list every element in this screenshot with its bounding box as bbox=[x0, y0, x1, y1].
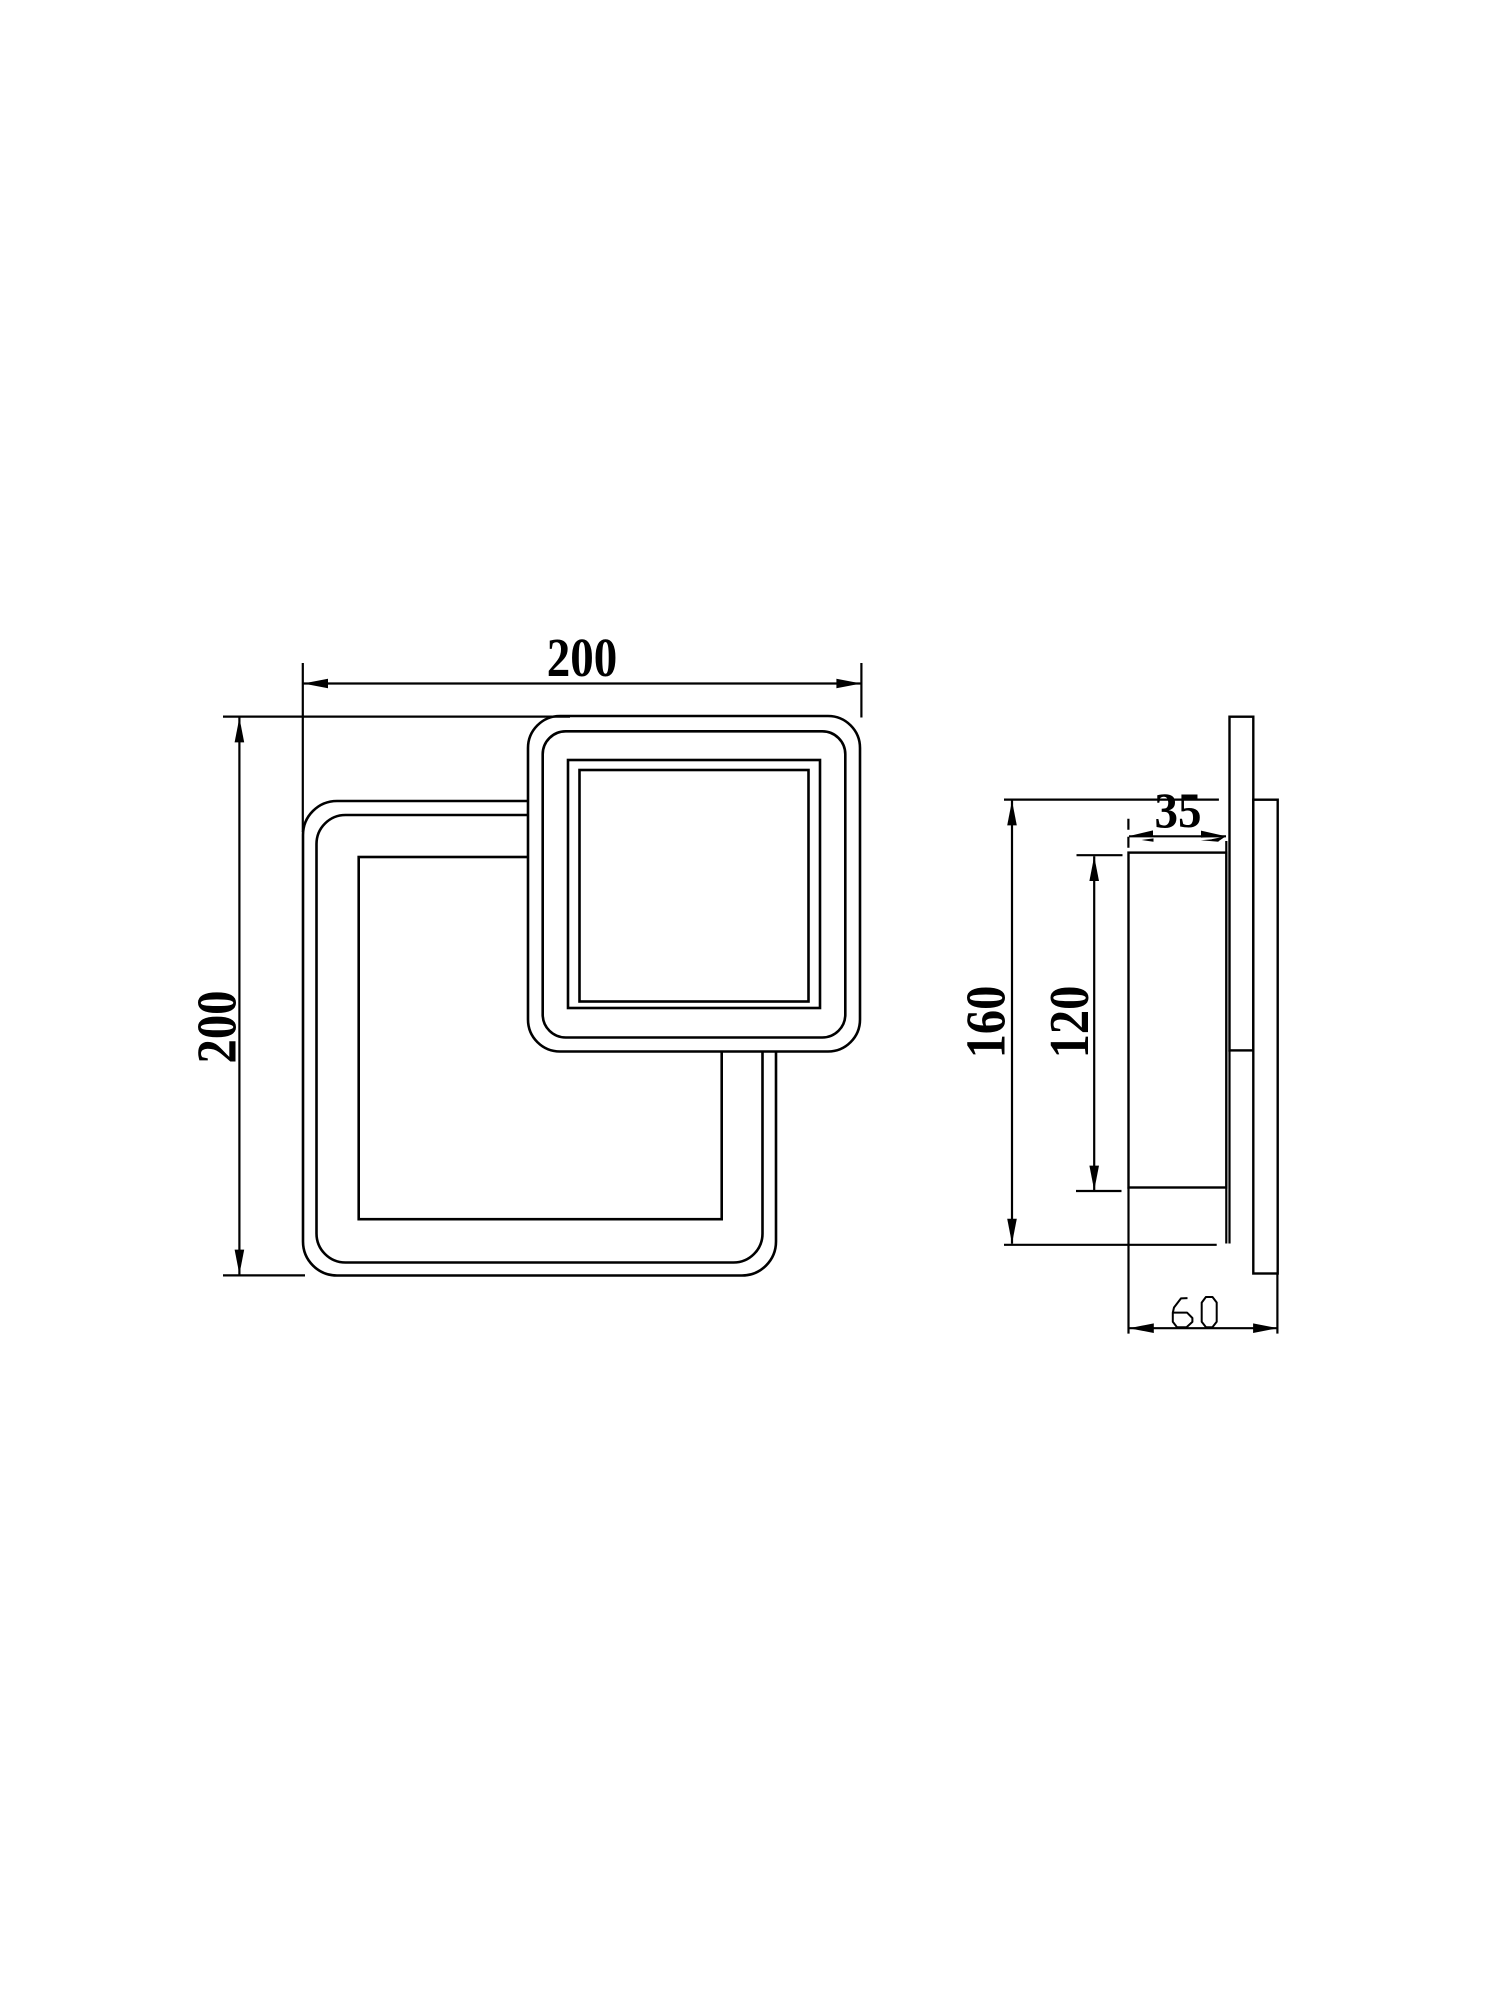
svg-text:200: 200 bbox=[187, 991, 249, 1064]
svg-text:200: 200 bbox=[547, 628, 618, 689]
svg-text:35: 35 bbox=[1155, 782, 1202, 838]
svg-text:160: 160 bbox=[956, 986, 1018, 1059]
svg-text:120: 120 bbox=[1039, 986, 1101, 1059]
